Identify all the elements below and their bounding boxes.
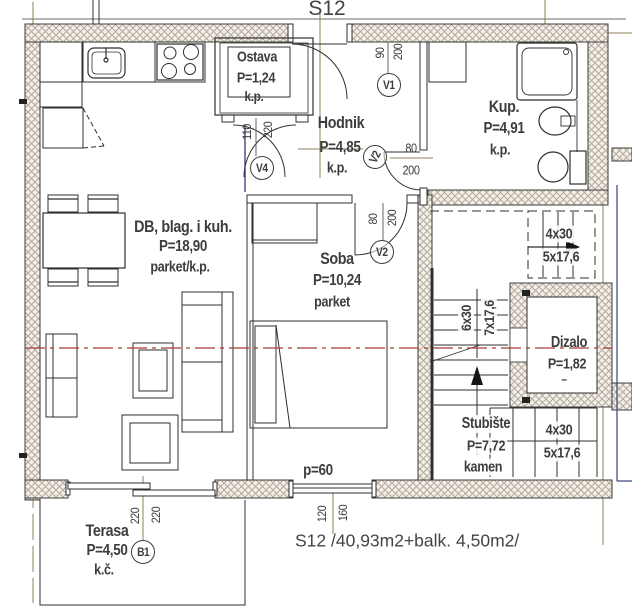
room-kup-name: Kup.: [489, 97, 519, 117]
door-tag-v4: V4: [250, 156, 274, 180]
room-stubiste-area: P=7,72: [465, 438, 507, 455]
room-kup-floor: k.p.: [490, 142, 510, 159]
fridge-cabinet: [43, 108, 104, 148]
stairs-middle-rise: 7x17,6: [481, 298, 497, 337]
door-tag-v2-soba: V2: [370, 240, 394, 264]
room-hodnik-name: Hodnik: [318, 113, 364, 133]
room-soba-floor: parket: [314, 294, 350, 311]
door-tag-b1-label: B1: [137, 545, 149, 559]
room-db-name: DB, blag. i kuh.: [134, 217, 232, 237]
room-stubiste-name: Stubište: [460, 415, 512, 433]
room-ostava-area: P=1,24: [237, 70, 275, 87]
room-stubiste-floor: kamen: [462, 459, 504, 476]
room-hodnik-area: P=4,85: [320, 139, 361, 157]
room-dizalo-area: P=1,82: [548, 356, 586, 373]
window-label: p=60: [303, 462, 333, 480]
stairs-lower-rise: 5x17,6: [542, 445, 582, 462]
room-db-floor: parket/k.p.: [150, 259, 209, 276]
dim-v4-width: 110: [240, 124, 254, 140]
living-furniture: [46, 292, 233, 470]
door-tag-v4-label: V4: [256, 161, 268, 175]
dining-table: [43, 195, 125, 286]
door-tag-v2-kup: V2: [363, 145, 387, 169]
dim-window-height: 160: [336, 505, 350, 521]
dim-v1-height: 200: [391, 44, 405, 60]
dim-b1-a: 220: [128, 508, 142, 524]
room-kup-area: P=4,91: [484, 120, 525, 138]
room-db-area: P=18,90: [159, 238, 207, 256]
kitchen-counter: [40, 42, 205, 107]
door-tag-v1: V1: [377, 73, 401, 97]
bedroom-furniture: [250, 203, 387, 428]
page-title: S12: [308, 0, 345, 21]
dim-b1-b: 220: [149, 507, 163, 523]
stairs-upper-rise: 5x17,6: [541, 249, 581, 266]
dim-v2kup-width: 80: [405, 141, 416, 156]
dim-v4-height: 220: [261, 122, 275, 138]
kitchen-sink: [88, 48, 125, 78]
dim-v2kup-height: 200: [403, 163, 420, 178]
dim-v1-width: 90: [373, 48, 387, 59]
room-dizalo-name: Dizalo: [551, 334, 587, 352]
room-dizalo-floor: –: [561, 372, 566, 386]
door-tag-v2-soba-label: V2: [376, 245, 388, 259]
room-soba-name: Soba: [320, 249, 354, 269]
stairs-upper-run: 4x30: [544, 226, 574, 243]
dim-v2soba-height: 200: [385, 210, 399, 226]
stairs-middle-run: 6x30: [458, 303, 474, 333]
room-terasa-floor: k.č.: [94, 562, 114, 579]
door-tag-v2-kup-label: V2: [366, 149, 384, 166]
balcony-door: [66, 482, 217, 496]
room-ostava-floor: k.p.: [245, 88, 264, 104]
dim-v2soba-width: 80: [366, 214, 380, 225]
door-tag-b1: B1: [131, 540, 155, 564]
dim-window-width: 120: [315, 506, 329, 522]
room-soba-area: P=10,24: [313, 272, 361, 290]
room-terasa-name: Terasa: [86, 521, 129, 541]
room-ostava-name: Ostava: [237, 49, 277, 66]
stove: [157, 44, 203, 80]
room-hodnik-floor: k.p.: [327, 160, 347, 177]
caption: S12 /40,93m2+balk. 4,50m2/: [295, 531, 519, 552]
stairs-lower-run: 4x30: [544, 422, 574, 439]
room-terasa-area: P=4,50: [87, 542, 128, 560]
floor-plan-s12: S12 S12 /40,93m2+balk. 4,50m2/ Ostava P=…: [0, 0, 632, 611]
door-tag-v1-label: V1: [383, 78, 395, 92]
